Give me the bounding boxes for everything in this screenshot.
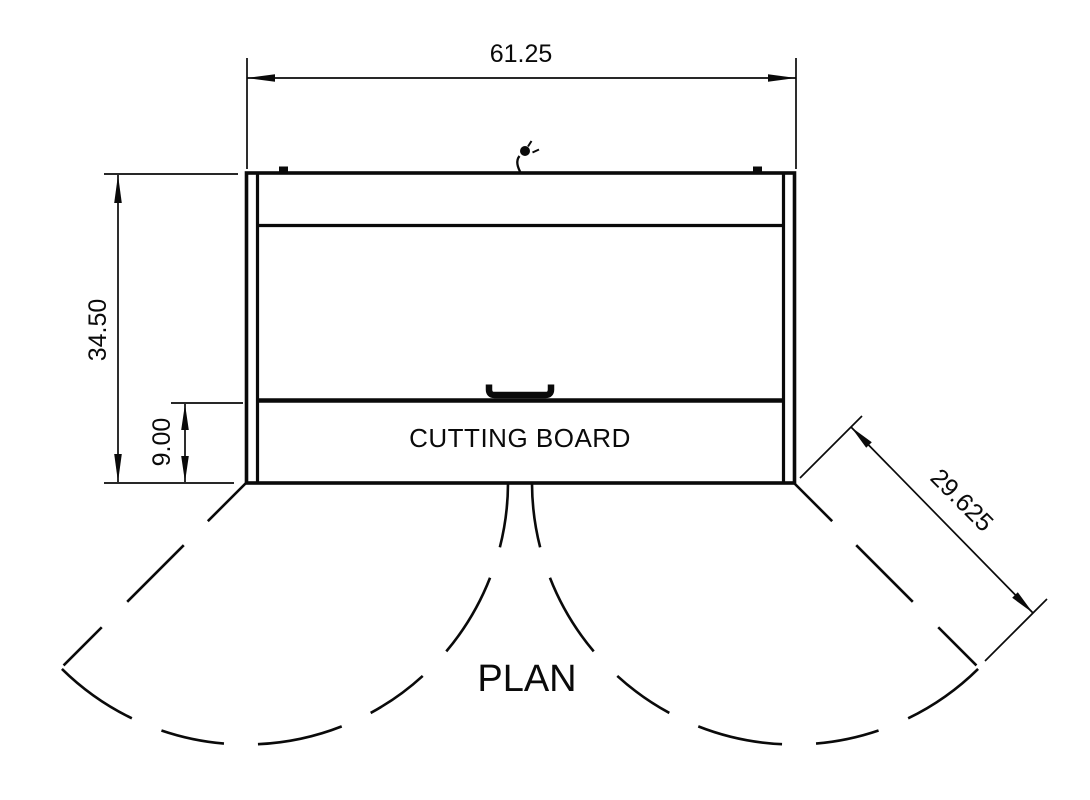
hinge-icon-left (279, 167, 288, 174)
extension-line (800, 416, 862, 478)
dim-cutting-board-depth: 9.00 (148, 403, 243, 482)
overall-width-value: 61.25 (490, 40, 553, 68)
arrowhead-upper (851, 427, 872, 448)
right-door-swing-arc (532, 484, 979, 744)
view-title: PLAN (477, 658, 576, 700)
extension-line (985, 599, 1047, 661)
left-door-swing-arc (61, 484, 508, 744)
arrowhead-bottom (181, 456, 189, 482)
cutting-board-label: CUTTING BOARD (409, 423, 631, 453)
dim-door-swing: 29.625 (800, 416, 1047, 661)
technical-drawing-canvas: 61.25 34.50 9.00 29.625 (0, 0, 1090, 800)
cutting-board-depth-value: 9.00 (148, 418, 176, 467)
power-cord-icon (517, 141, 539, 174)
plan-view-drawing: 61.25 34.50 9.00 29.625 (0, 0, 1090, 800)
left-door-open-line (61, 483, 246, 668)
dimension-line (851, 427, 1033, 613)
arrowhead-top (114, 175, 122, 203)
door-swing-value: 29.625 (925, 463, 999, 537)
right-door-open-line (794, 483, 979, 668)
arrowhead-lower (1012, 592, 1033, 613)
door-swing (61, 483, 979, 744)
arrowhead-right (768, 74, 796, 82)
arrowhead-left (247, 74, 275, 82)
hinge-icon-right (753, 167, 762, 174)
overall-depth-value: 34.50 (84, 299, 112, 362)
arrowhead-bottom (114, 454, 122, 482)
arrowhead-top (181, 404, 189, 430)
